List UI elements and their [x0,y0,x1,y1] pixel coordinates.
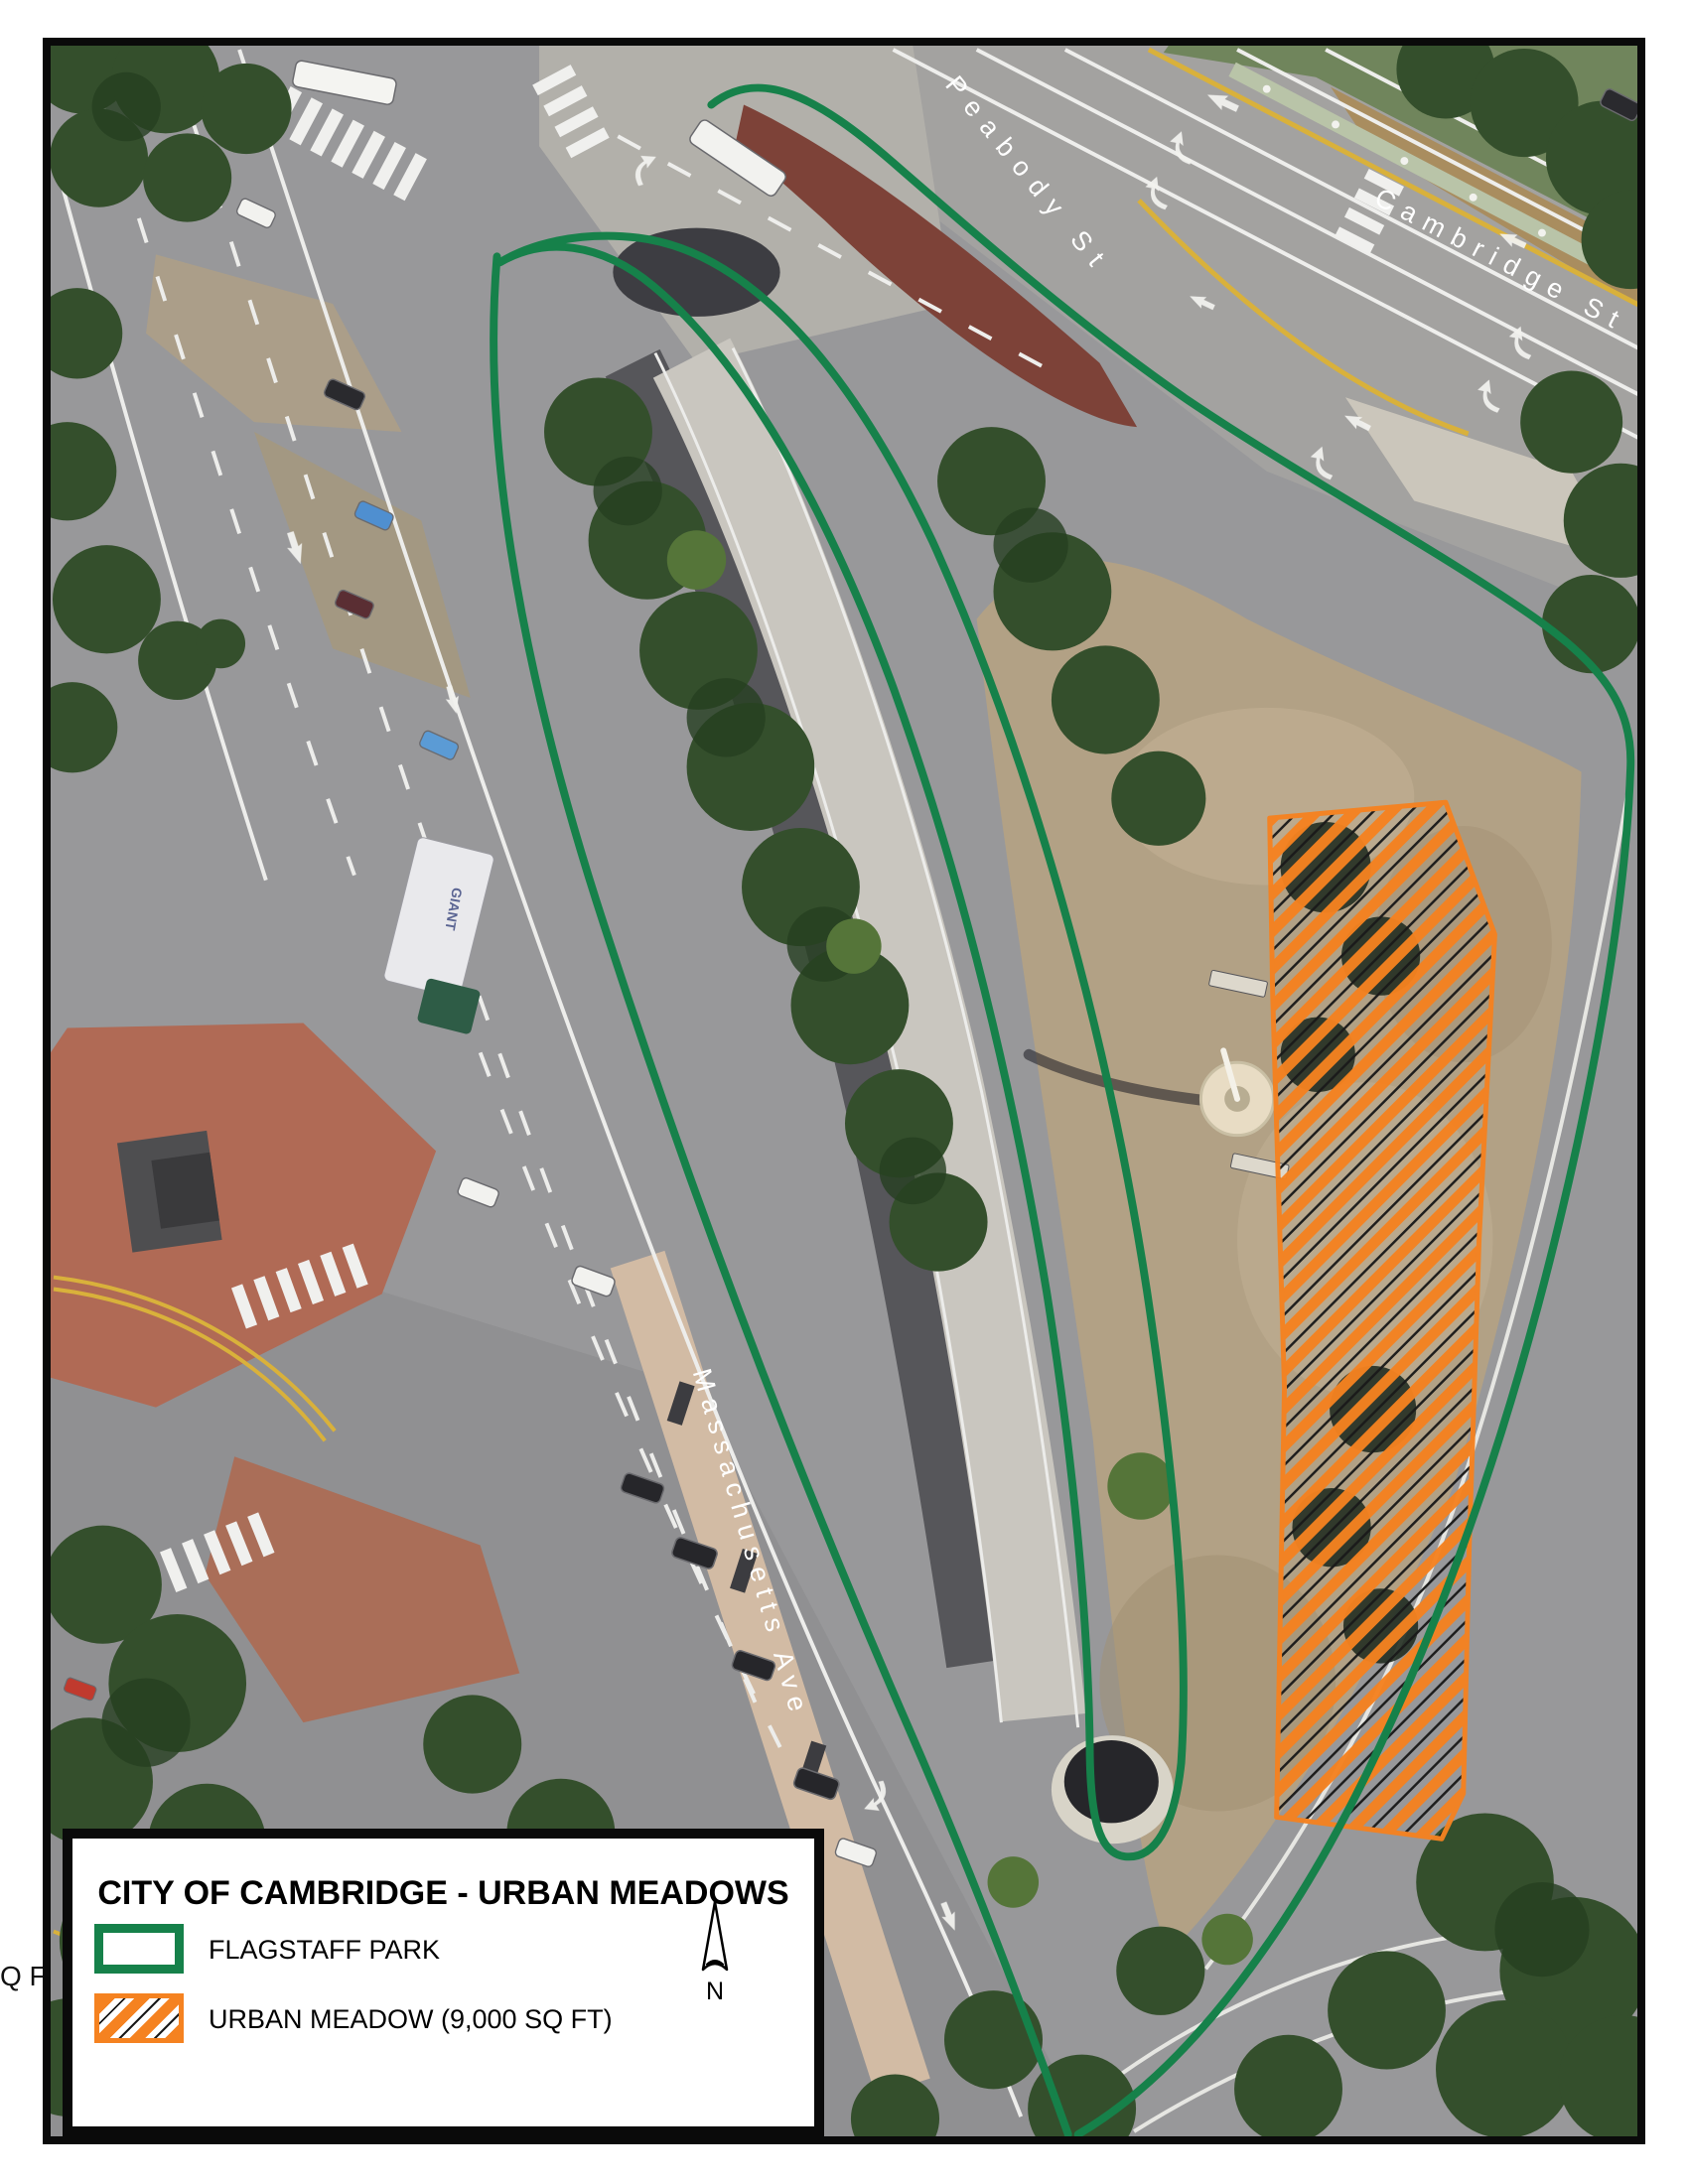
map-frame: GIANT Peabody St Cambridge St Massachuse… [43,38,1645,2144]
legend-label-flagstaff-park: FLAGSTAFF PARK [209,1935,440,1966]
legend-swatch-flagstaff-park [94,1924,184,1974]
legend-swatch-urban-meadow [94,1993,184,2043]
legend-box: CITY OF CAMBRIDGE - URBAN MEADOWS FLAGST… [63,1829,824,2136]
north-arrow: N [680,1896,750,2005]
aerial-imagery: GIANT Peabody St Cambridge St Massachuse… [51,46,1637,2136]
north-label: N [706,1978,724,2006]
legend-label-urban-meadow: URBAN MEADOW (9,000 SQ FT) [209,2004,613,2035]
north-arrow-icon [703,1902,727,1970]
urban-meadow-polygon [1270,802,1495,1839]
